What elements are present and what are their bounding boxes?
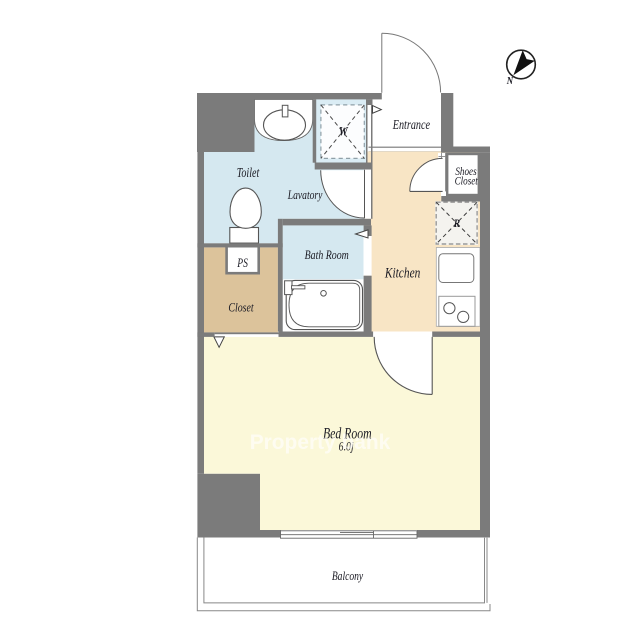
svg-text:Closet: Closet — [228, 301, 254, 315]
svg-text:N: N — [506, 75, 514, 87]
svg-text:PS: PS — [236, 257, 248, 271]
svg-text:Closet: Closet — [455, 176, 479, 188]
svg-text:W: W — [339, 126, 349, 139]
svg-text:Kitchen: Kitchen — [384, 264, 421, 281]
svg-text:Property bank: Property bank — [250, 431, 391, 454]
svg-text:R: R — [453, 217, 460, 230]
svg-text:Bath Room: Bath Room — [305, 249, 349, 263]
svg-text:Entrance: Entrance — [392, 117, 431, 133]
svg-text:Lavatory: Lavatory — [287, 189, 322, 203]
svg-text:Toilet: Toilet — [237, 166, 260, 181]
svg-text:Balcony: Balcony — [332, 570, 363, 584]
